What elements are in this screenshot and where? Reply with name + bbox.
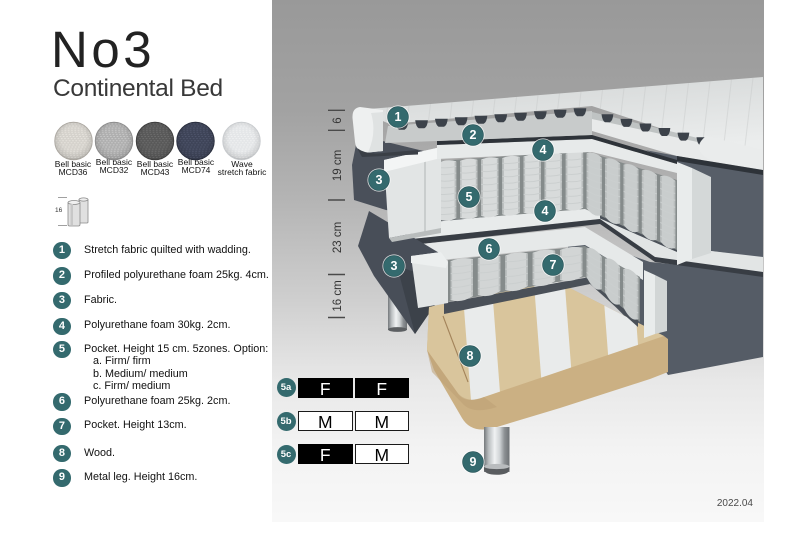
svg-text:1: 1 [395, 110, 402, 124]
svg-text:16 cm: 16 cm [332, 280, 344, 311]
svg-text:2: 2 [470, 128, 477, 142]
svg-text:19 cm: 19 cm [332, 150, 344, 181]
svg-text:6: 6 [332, 117, 344, 123]
svg-text:5: 5 [466, 190, 473, 204]
svg-text:3: 3 [391, 259, 398, 273]
svg-text:4: 4 [540, 143, 547, 157]
svg-text:8: 8 [467, 349, 474, 363]
svg-text:6: 6 [486, 242, 493, 256]
svg-text:3: 3 [376, 173, 383, 187]
svg-text:16: 16 [55, 207, 63, 214]
svg-text:7: 7 [550, 258, 557, 272]
svg-text:2022.04: 2022.04 [717, 498, 754, 509]
svg-text:23 cm: 23 cm [332, 222, 344, 253]
svg-text:9: 9 [470, 455, 477, 469]
svg-text:4: 4 [542, 204, 549, 218]
